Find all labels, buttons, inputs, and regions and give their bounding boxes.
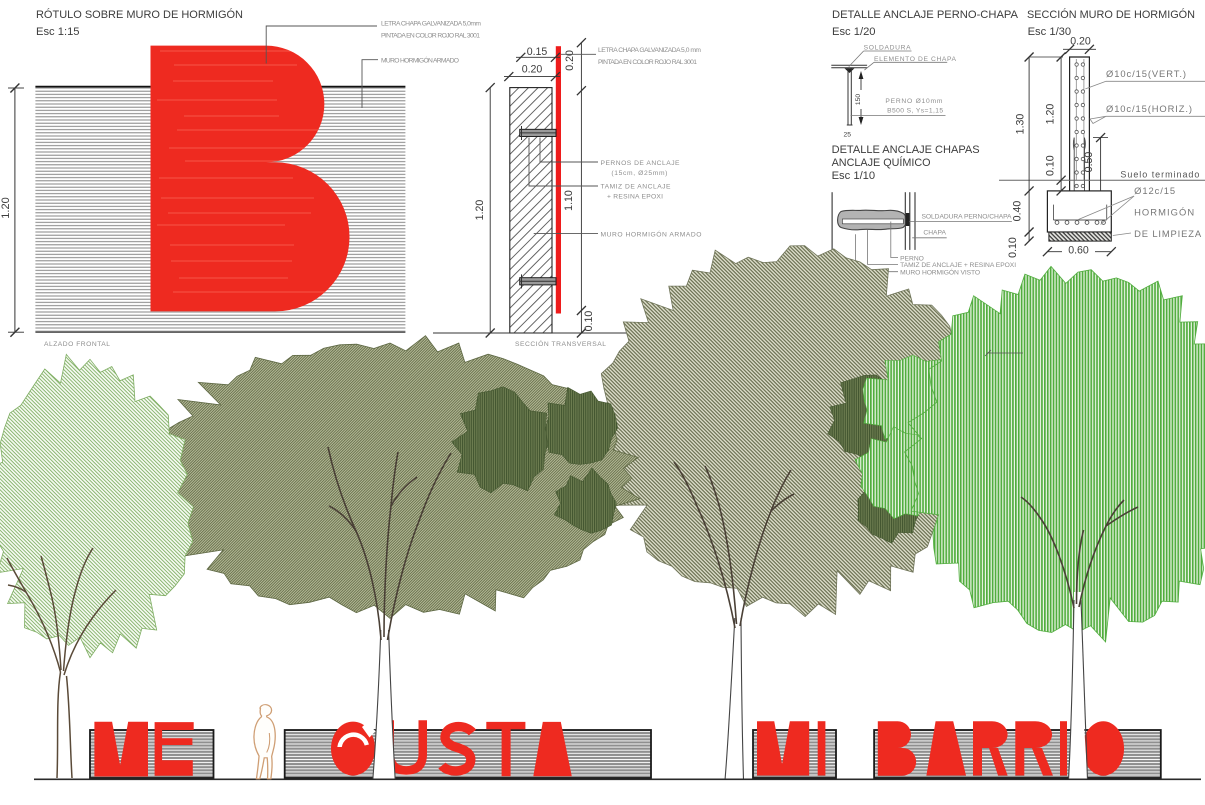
svg-text:RÓTULO SOBRE MURO DE HORMIGÓN: RÓTULO SOBRE MURO DE HORMIGÓN: [36, 8, 243, 21]
svg-text:B500 S, Ys=1,15: B500 S, Ys=1,15: [887, 108, 943, 115]
svg-text:MURO HORMIGÓN VISTO: MURO HORMIGÓN VISTO: [900, 267, 980, 276]
svg-text:PINTADA EN COLOR ROJO RAL 3001: PINTADA EN COLOR ROJO RAL 3001: [381, 33, 480, 40]
svg-text:Ø10c/15(VERT.): Ø10c/15(VERT.): [1106, 68, 1186, 79]
svg-text:0.10: 0.10: [1007, 237, 1019, 258]
svg-text:HORMIGÓN: HORMIGÓN: [1134, 207, 1194, 218]
svg-text:1.20: 1.20: [1045, 104, 1057, 125]
svg-text:LETRA CHAPA GALVANIZADA 5,0 mm: LETRA CHAPA GALVANIZADA 5,0 mm: [598, 47, 701, 54]
svg-text:PINTADA EN COLOR ROJO RAL 3001: PINTADA EN COLOR ROJO RAL 3001: [598, 59, 697, 66]
svg-text:DETALLE ANCLAJE CHAPAS: DETALLE ANCLAJE CHAPAS: [832, 144, 980, 156]
svg-text:1.10: 1.10: [563, 190, 575, 211]
svg-text:Esc 1/10: Esc 1/10: [832, 170, 876, 182]
svg-text:ELEMENTO DE CHAPA: ELEMENTO DE CHAPA: [874, 56, 957, 63]
svg-text:ANCLAJE QUÍMICO: ANCLAJE QUÍMICO: [832, 156, 931, 169]
svg-text:Esc 1:15: Esc 1:15: [36, 26, 80, 38]
svg-text:TAMIZ DE ANCLAJE: TAMIZ DE ANCLAJE: [601, 184, 672, 191]
svg-text:0.10: 0.10: [583, 311, 595, 332]
svg-text:MURO HORMIGÓN ARMADO: MURO HORMIGÓN ARMADO: [381, 56, 459, 65]
svg-text:0.40: 0.40: [1012, 201, 1024, 222]
svg-text:Esc 1/30: Esc 1/30: [1028, 26, 1072, 38]
svg-text:TAMIZ DE ANCLAJE + RESINA EPOX: TAMIZ DE ANCLAJE + RESINA EPOXI: [900, 262, 1016, 269]
svg-text:DETALLE ANCLAJE PERNO-CHAPA: DETALLE ANCLAJE PERNO-CHAPA: [832, 9, 1019, 21]
svg-text:0.10: 0.10: [1045, 155, 1057, 176]
svg-text:150: 150: [855, 94, 862, 105]
svg-text:Ø12c/15: Ø12c/15: [1134, 185, 1175, 196]
svg-text:0.20: 0.20: [564, 50, 576, 71]
svg-text:Suelo terminado: Suelo terminado: [1120, 170, 1199, 180]
svg-text:Esc 1/20: Esc 1/20: [832, 26, 876, 38]
svg-text:0.60: 0.60: [1068, 245, 1089, 257]
svg-text:SOLDADURA: SOLDADURA: [864, 45, 912, 52]
svg-text:CHAPA: CHAPA: [923, 230, 946, 237]
svg-text:LETRA CHAPA GALVANIZADA 5,0mm: LETRA CHAPA GALVANIZADA 5,0mm: [381, 21, 481, 28]
svg-text:PERNO Ø10mm: PERNO Ø10mm: [885, 98, 942, 105]
svg-text:+ RESINA EPOXI: + RESINA EPOXI: [607, 193, 663, 200]
svg-text:25: 25: [844, 132, 852, 139]
svg-text:(15cm, Ø25mm): (15cm, Ø25mm): [611, 170, 667, 177]
svg-text:1.20: 1.20: [0, 197, 12, 218]
svg-text:1.30: 1.30: [1015, 114, 1027, 135]
svg-text:1.20: 1.20: [474, 200, 486, 221]
svg-text:0.50: 0.50: [1083, 152, 1095, 173]
svg-text:Ø10c/15(HORIZ.): Ø10c/15(HORIZ.): [1106, 103, 1192, 114]
svg-text:ALZADO FRONTAL: ALZADO FRONTAL: [44, 341, 110, 348]
svg-text:MURO HORMIGÓN ARMADO: MURO HORMIGÓN ARMADO: [601, 230, 702, 239]
svg-text:0.20: 0.20: [522, 64, 543, 76]
svg-text:SECCIÓN TRANSVERSAL: SECCIÓN TRANSVERSAL: [515, 339, 606, 348]
svg-text:DE LIMPIEZA: DE LIMPIEZA: [1134, 228, 1202, 239]
svg-text:PERNOS DE ANCLAJE: PERNOS DE ANCLAJE: [601, 160, 681, 167]
svg-text:SOLDADURA PERNO/CHAPA: SOLDADURA PERNO/CHAPA: [922, 214, 1013, 221]
svg-text:0.15: 0.15: [527, 46, 548, 58]
svg-text:SECCIÓN MURO DE HORMIGÓN: SECCIÓN MURO DE HORMIGÓN: [1027, 8, 1195, 21]
